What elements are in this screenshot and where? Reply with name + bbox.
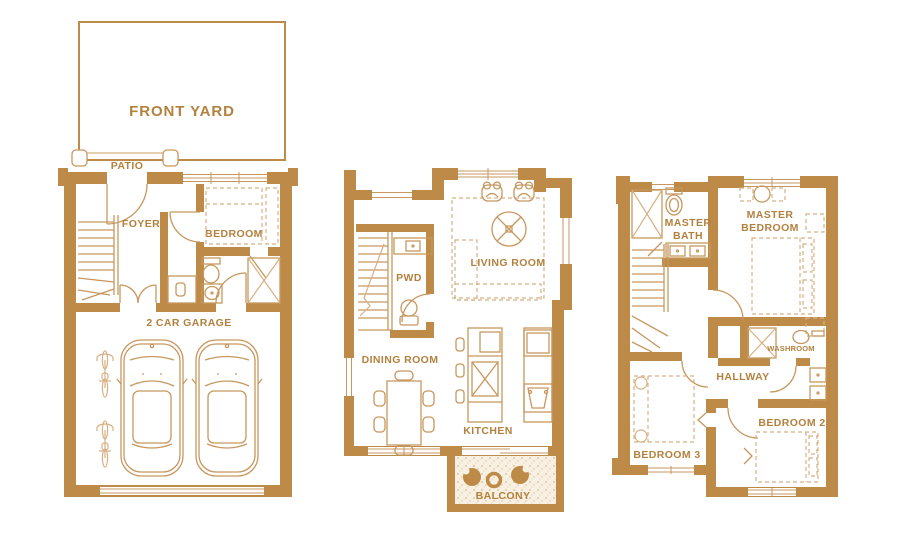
washroom-door — [770, 366, 796, 392]
label-garage: 2 CAR GARAGE — [146, 317, 231, 329]
label-dining-room: DINING ROOM — [362, 354, 439, 366]
garage-door — [100, 487, 264, 495]
floor-plan-3: MASTER BATH MASTER BEDROOM — [612, 176, 838, 497]
pwd-room — [390, 232, 434, 338]
label-hallway: HALLWAY — [716, 371, 769, 383]
label-balcony: BALCONY — [476, 490, 531, 502]
kitchen-island-icon — [468, 328, 502, 422]
label-patio: PATIO — [111, 160, 144, 172]
label-front-yard: FRONT YARD — [129, 103, 235, 120]
dining-table-icon — [374, 371, 434, 455]
armchair-icon — [482, 182, 502, 201]
refrigerator-icon — [524, 330, 552, 356]
sink-icon — [793, 331, 824, 344]
coffee-table-icon — [492, 212, 526, 246]
stairs-icon — [78, 215, 118, 300]
closet-outline — [266, 188, 278, 244]
label-master-bath-2: BATH — [673, 230, 703, 242]
front-yard-outline — [79, 22, 285, 160]
closet-x-icon — [248, 258, 280, 303]
plan2-outer-walls — [344, 168, 572, 456]
plan3-interior-walls — [630, 176, 836, 458]
floorplan-page: FRONT YARD PATIO — [0, 0, 900, 542]
car-icon — [117, 340, 187, 476]
shower-icon — [748, 328, 776, 358]
bedroom2-door — [728, 408, 758, 438]
floor-plan-image: FRONT YARD PATIO — [0, 0, 900, 542]
bicycle-icon — [97, 421, 113, 467]
rug-outline — [452, 198, 544, 298]
vanity-icon — [810, 368, 826, 400]
toilet-icon — [666, 188, 682, 215]
balcony-sliding-door — [462, 447, 548, 455]
label-living-room: LIVING ROOM — [471, 257, 546, 269]
balcony: BALCONY — [447, 456, 564, 512]
kitchen-counter-icon — [524, 328, 552, 422]
closet-bifold-icon — [744, 448, 752, 464]
car-icon — [192, 340, 262, 476]
sofa-outline — [455, 240, 541, 300]
bedroom-window — [183, 172, 267, 184]
bed-outline — [756, 432, 818, 482]
master-bedroom-door — [713, 290, 743, 320]
floor-plan-2: PWD LIVING ROOM DINING ROOM — [344, 168, 572, 512]
label-master-bedroom-2: BEDROOM — [741, 222, 799, 234]
pwd-door — [402, 294, 430, 322]
bed-outline — [634, 376, 694, 442]
label-washroom: WASHROOM — [767, 344, 814, 353]
bedroom-door — [170, 212, 200, 242]
double-sink-icon — [666, 243, 710, 258]
closet-door — [250, 256, 266, 278]
bath-door — [216, 273, 246, 303]
floor-plan-1: FRONT YARD PATIO — [58, 22, 298, 497]
label-master-bedroom-1: MASTER — [747, 209, 794, 221]
closet-bifold-icon — [698, 413, 706, 427]
stairs-icon — [356, 224, 434, 330]
toilet-icon — [202, 258, 220, 283]
dresser-chairs-icon — [740, 186, 785, 202]
plan1-interior-walls — [76, 184, 292, 312]
label-master-bath-1: MASTER — [665, 217, 712, 229]
bar-stools-icon — [456, 338, 464, 403]
bicycle-icon — [97, 351, 113, 397]
washer-icon — [168, 276, 196, 303]
sink-icon — [202, 284, 222, 303]
label-bedroom2: BEDROOM 2 — [758, 417, 825, 429]
label-kitchen: KITCHEN — [463, 425, 512, 437]
label-foyer: FOYER — [122, 218, 160, 230]
bedroom3-door — [682, 361, 708, 387]
stove-icon — [524, 384, 552, 412]
shower-icon — [632, 190, 662, 256]
foyer-double-doors — [120, 285, 156, 303]
label-bedroom3: BEDROOM 3 — [633, 449, 700, 461]
label-pwd: PWD — [396, 272, 422, 284]
label-bedroom: BEDROOM — [205, 228, 263, 240]
